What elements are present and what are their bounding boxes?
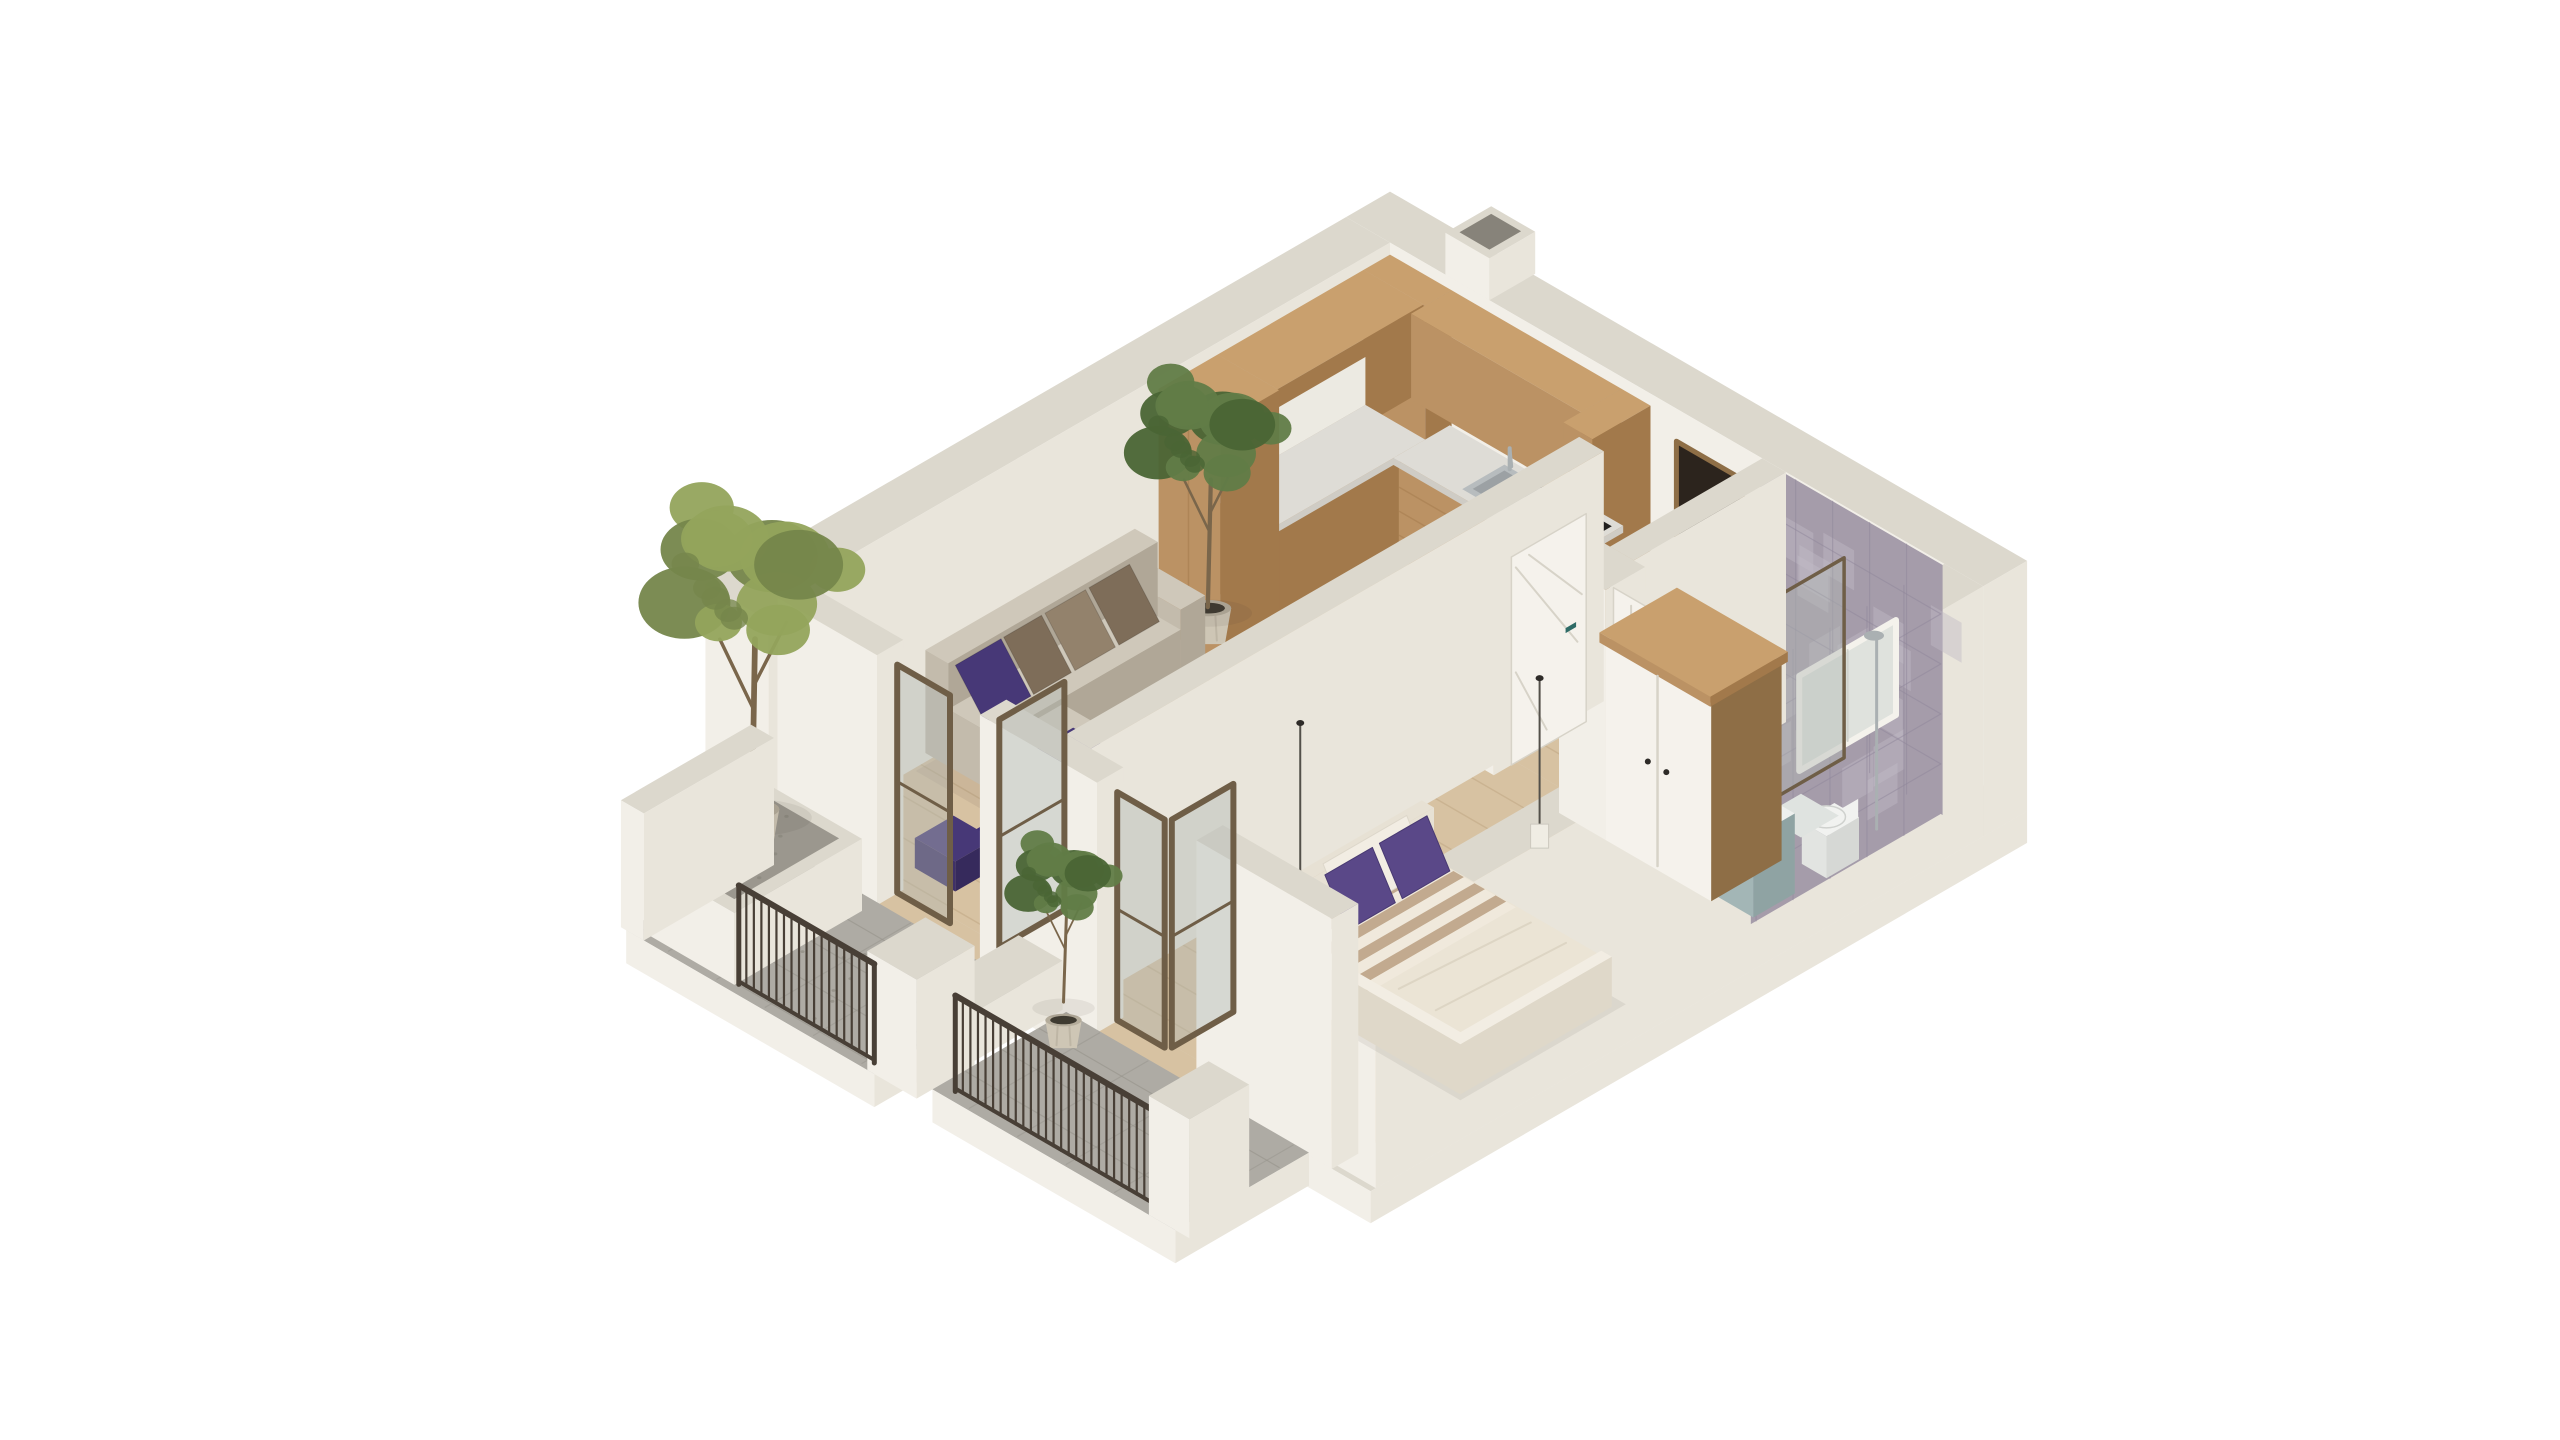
bedroom-door xyxy=(1511,514,1586,765)
parapet-pillar-right xyxy=(1149,1061,1249,1238)
kitchen-faucet xyxy=(1510,448,1512,469)
floorplan-render-stage xyxy=(0,0,2560,1440)
balcony-glass-door-bedroom xyxy=(1117,784,1233,1048)
apartment-isometric-render xyxy=(0,0,2560,1440)
